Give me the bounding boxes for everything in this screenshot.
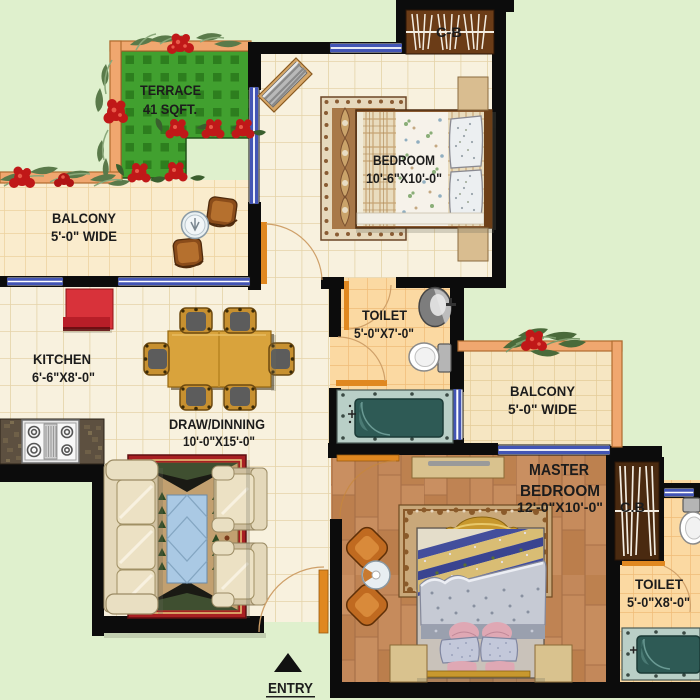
svg-text:5'-0" WIDE: 5'-0" WIDE <box>508 401 577 417</box>
svg-text:41 SQFT.: 41 SQFT. <box>143 101 197 117</box>
svg-text:10'-0"X15'-0": 10'-0"X15'-0" <box>183 433 255 449</box>
svg-text:10'-6"X10'-0": 10'-6"X10'-0" <box>366 170 442 186</box>
svg-text:DRAW/DINNING: DRAW/DINNING <box>169 416 265 432</box>
svg-text:C-B: C-B <box>436 25 462 40</box>
svg-text:5'-0" WIDE: 5'-0" WIDE <box>51 228 117 244</box>
svg-text:BALCONY: BALCONY <box>52 210 117 226</box>
svg-text:C.B: C.B <box>620 500 645 515</box>
svg-text:BALCONY: BALCONY <box>510 383 576 399</box>
svg-text:MASTER: MASTER <box>529 462 589 479</box>
svg-text:TOILET: TOILET <box>635 576 683 592</box>
svg-text:12'-0"X10'-0": 12'-0"X10'-0" <box>517 499 603 515</box>
svg-text:5'-0"X8'-0": 5'-0"X8'-0" <box>627 594 690 610</box>
svg-text:6'-6"X8'-0": 6'-6"X8'-0" <box>32 369 95 385</box>
svg-text:KITCHEN: KITCHEN <box>33 351 91 367</box>
svg-text:BEDROOM: BEDROOM <box>520 483 600 500</box>
svg-text:TERRACE: TERRACE <box>140 82 201 98</box>
svg-text:ENTRY: ENTRY <box>268 680 313 697</box>
svg-text:BEDROOM: BEDROOM <box>373 152 435 168</box>
svg-text:5'-0"X7'-0": 5'-0"X7'-0" <box>354 325 414 341</box>
svg-text:TOILET: TOILET <box>362 307 407 323</box>
